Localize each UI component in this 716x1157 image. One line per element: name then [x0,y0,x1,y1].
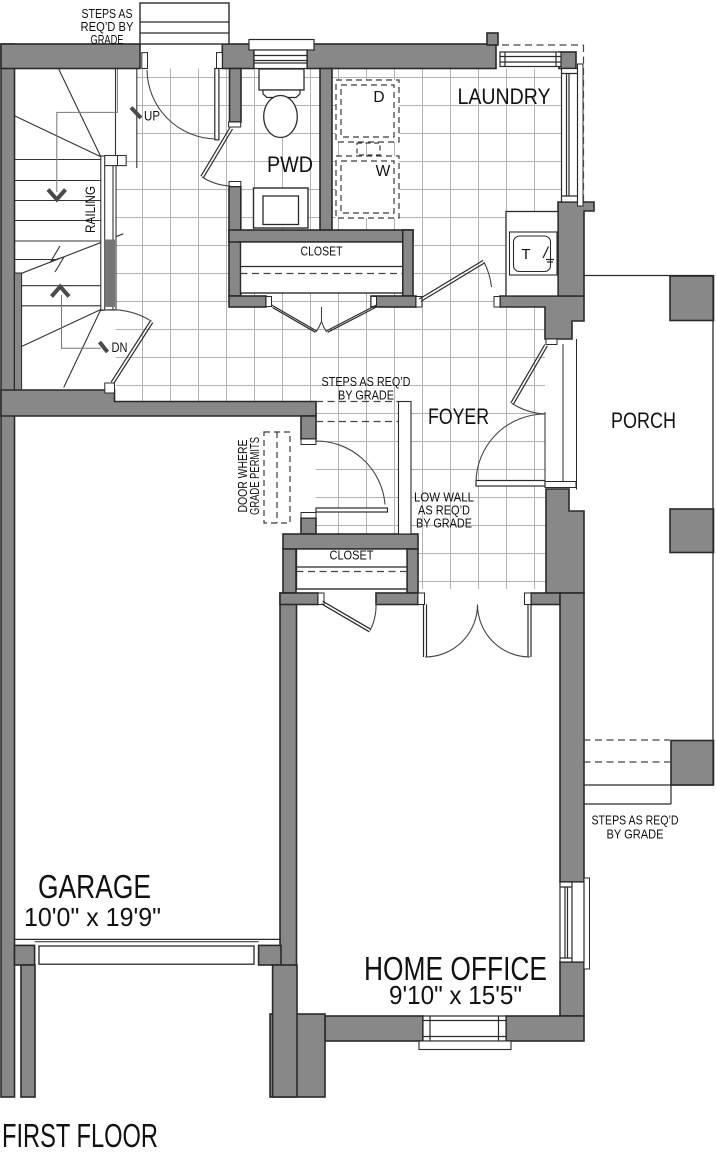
svg-text:9'10" x 15'5": 9'10" x 15'5" [389,980,522,1010]
svg-text:BY GRADE: BY GRADE [416,516,472,531]
svg-text:GARAGE: GARAGE [38,868,151,905]
svg-text:DN: DN [112,339,128,355]
svg-text:BY GRADE: BY GRADE [338,388,394,403]
svg-text:W: W [376,163,391,180]
svg-text:T: T [521,246,530,263]
svg-text:GRADE PERMITS: GRADE PERMITS [247,437,262,515]
svg-text:LAUNDRY: LAUNDRY [458,84,551,109]
svg-text:GRADE: GRADE [91,32,124,47]
svg-text:RAILING: RAILING [83,186,98,233]
svg-text:UP: UP [144,108,160,124]
svg-text:CLOSET: CLOSET [301,245,343,259]
svg-text:10'0" x 19'9": 10'0" x 19'9" [24,902,161,932]
svg-text:FOYER: FOYER [428,404,489,429]
svg-text:FIRST FLOOR: FIRST FLOOR [2,1117,158,1154]
svg-text:BY GRADE: BY GRADE [607,827,664,842]
svg-text:D: D [373,89,384,106]
svg-text:PORCH: PORCH [611,408,676,433]
svg-text:STEPS AS REQ’D: STEPS AS REQ’D [592,813,679,828]
svg-text:PWD: PWD [267,152,313,177]
svg-text:CLOSET: CLOSET [330,549,374,563]
